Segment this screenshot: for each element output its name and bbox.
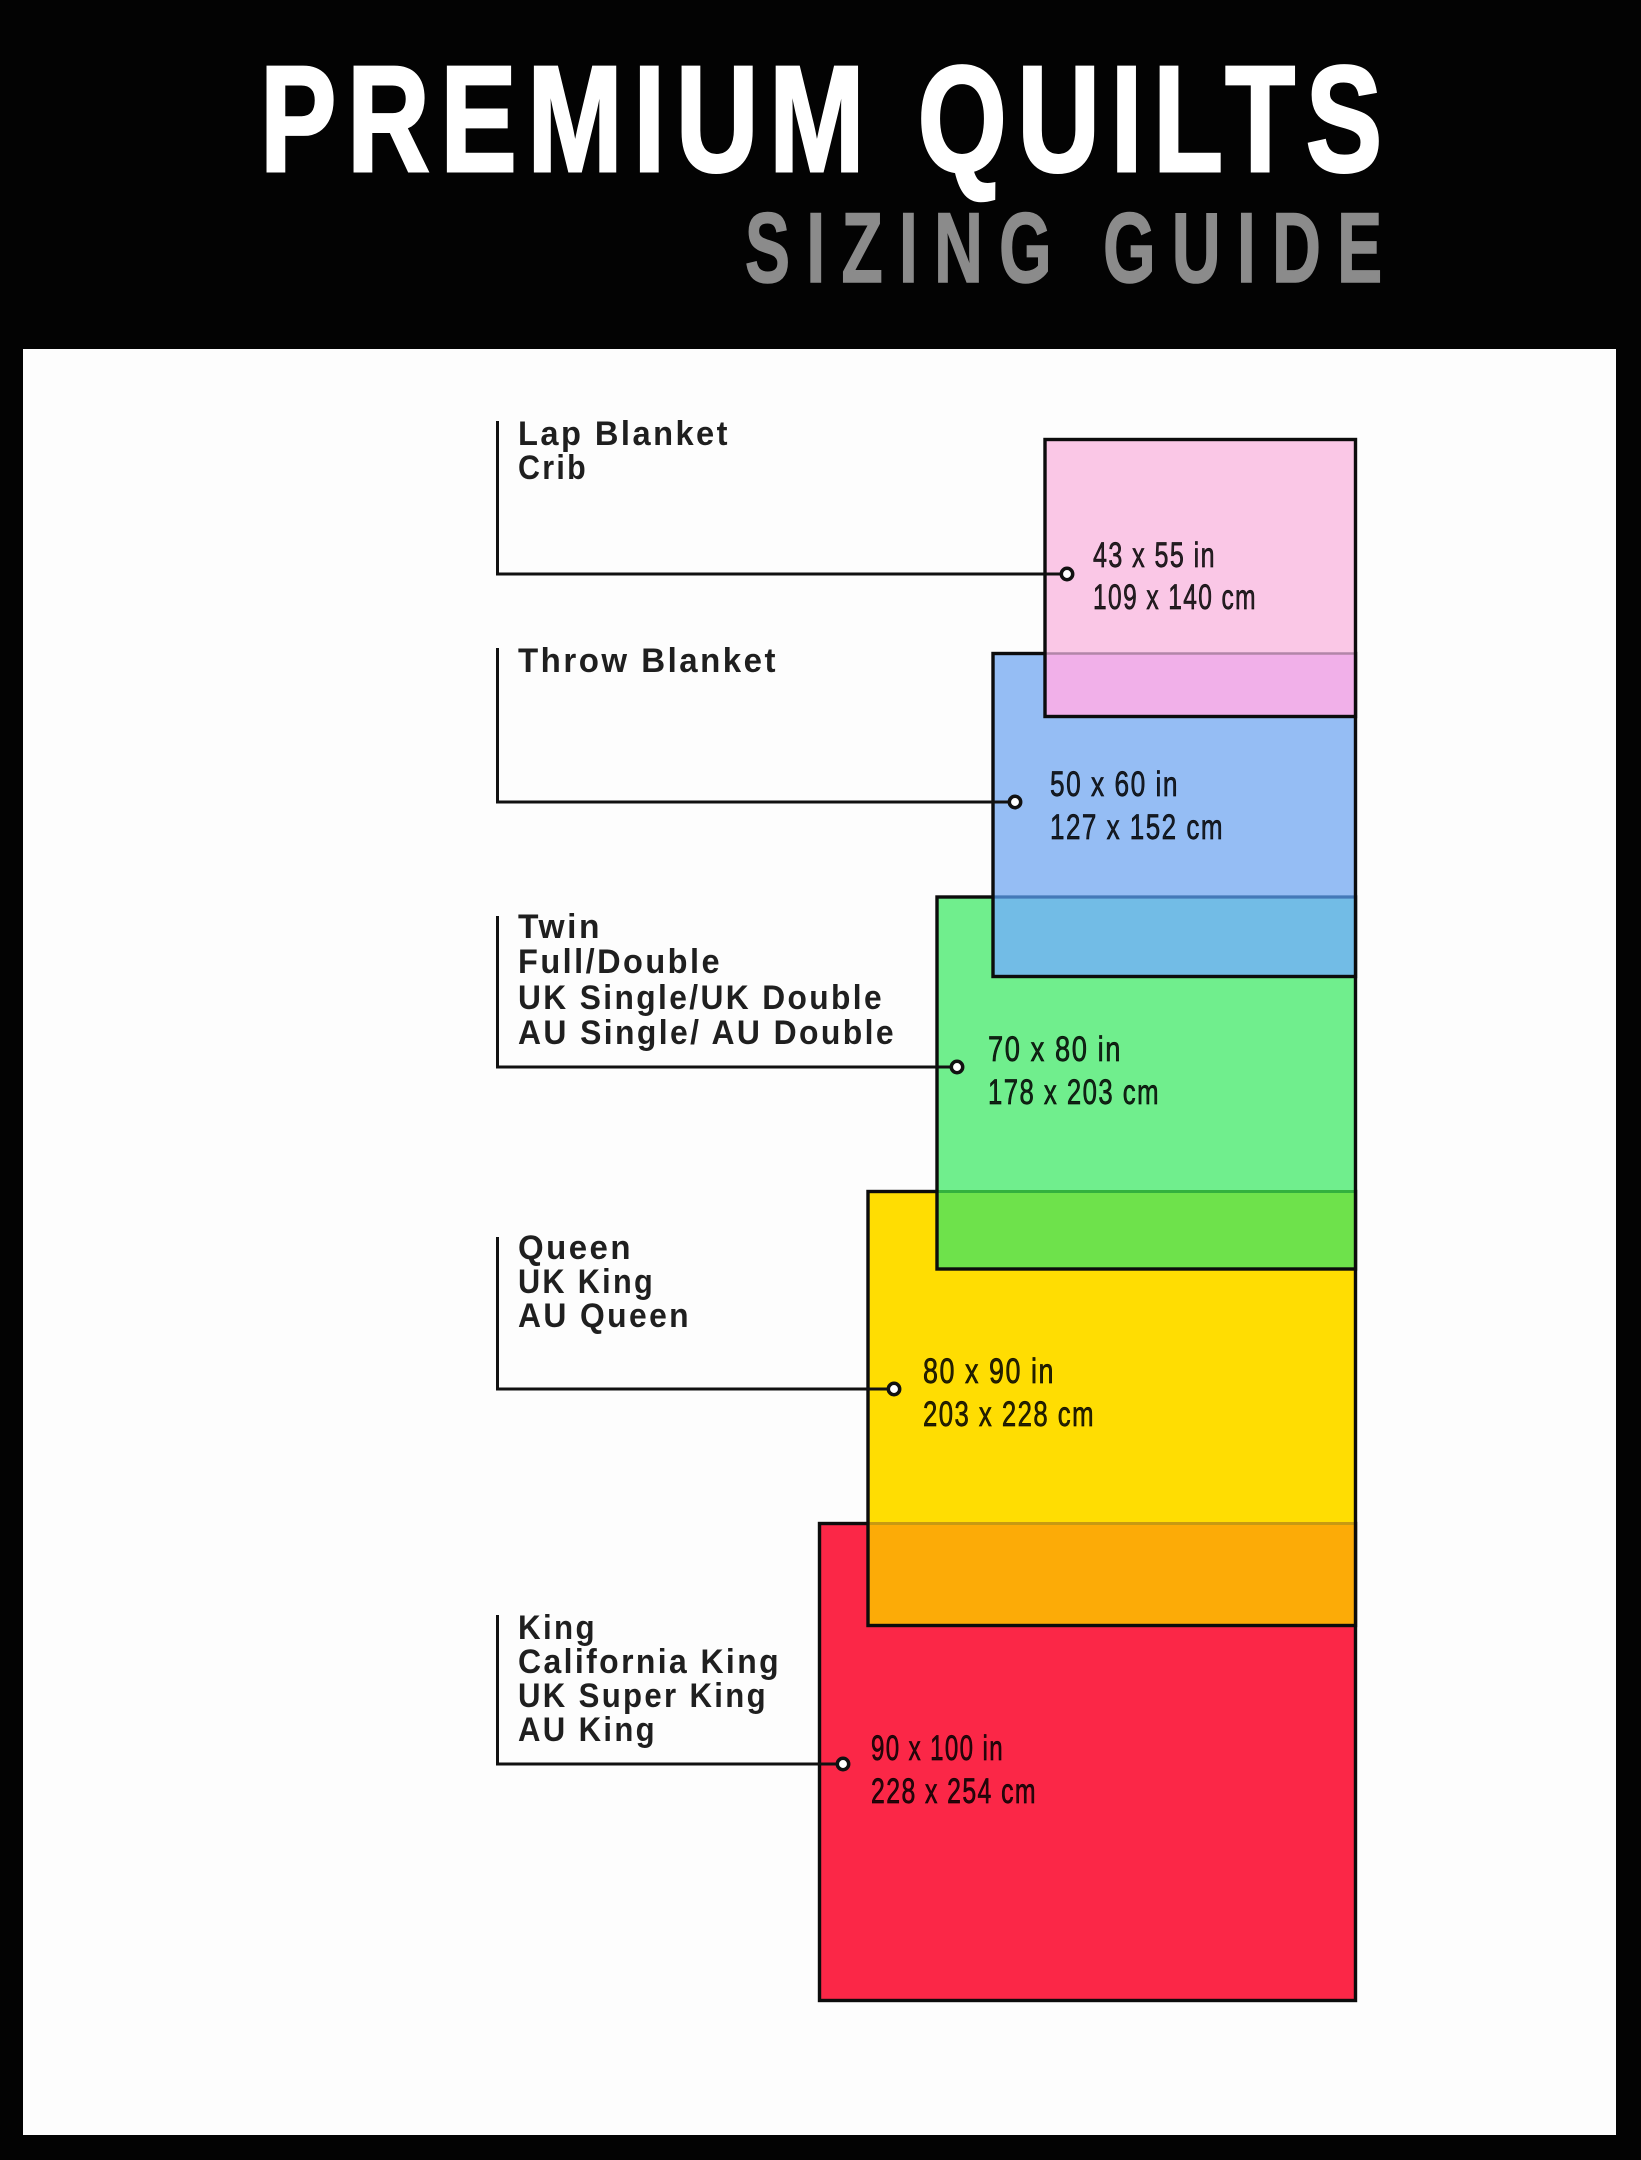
svg-text:90 x 100 in: 90 x 100 in xyxy=(871,1729,1004,1768)
svg-text:228 x 254 cm: 228 x 254 cm xyxy=(871,1772,1037,1811)
svg-text:Queen: Queen xyxy=(518,1229,633,1267)
svg-text:50 x 60 in: 50 x 60 in xyxy=(1050,765,1179,804)
svg-text:43 x 55 in: 43 x 55 in xyxy=(1093,536,1216,575)
svg-text:AU King: AU King xyxy=(518,1711,657,1749)
svg-text:Crib: Crib xyxy=(518,449,588,487)
svg-text:Twin: Twin xyxy=(518,908,602,946)
svg-text:AU Queen: AU Queen xyxy=(518,1297,691,1335)
svg-text:King: King xyxy=(518,1609,597,1647)
svg-text:Lap Blanket: Lap Blanket xyxy=(518,415,730,453)
svg-text:UK Super King: UK Super King xyxy=(518,1677,768,1715)
svg-text:UK Single/UK Double: UK Single/UK Double xyxy=(518,979,884,1017)
svg-text:Full/Double: Full/Double xyxy=(518,943,722,981)
svg-text:70 x 80 in: 70 x 80 in xyxy=(988,1030,1122,1069)
svg-text:California King: California King xyxy=(518,1643,781,1681)
svg-text:80 x 90 in: 80 x 90 in xyxy=(923,1352,1055,1391)
svg-text:Throw Blanket: Throw Blanket xyxy=(518,642,778,680)
svg-text:127 x 152 cm: 127 x 152 cm xyxy=(1050,808,1224,847)
svg-text:AU Single/ AU Double: AU Single/ AU Double xyxy=(518,1014,896,1052)
svg-text:178 x 203 cm: 178 x 203 cm xyxy=(988,1073,1160,1112)
svg-text:UK King: UK King xyxy=(518,1263,655,1301)
svg-text:109 x 140 cm: 109 x 140 cm xyxy=(1093,578,1257,617)
svg-text:203 x 228 cm: 203 x 228 cm xyxy=(923,1395,1095,1434)
